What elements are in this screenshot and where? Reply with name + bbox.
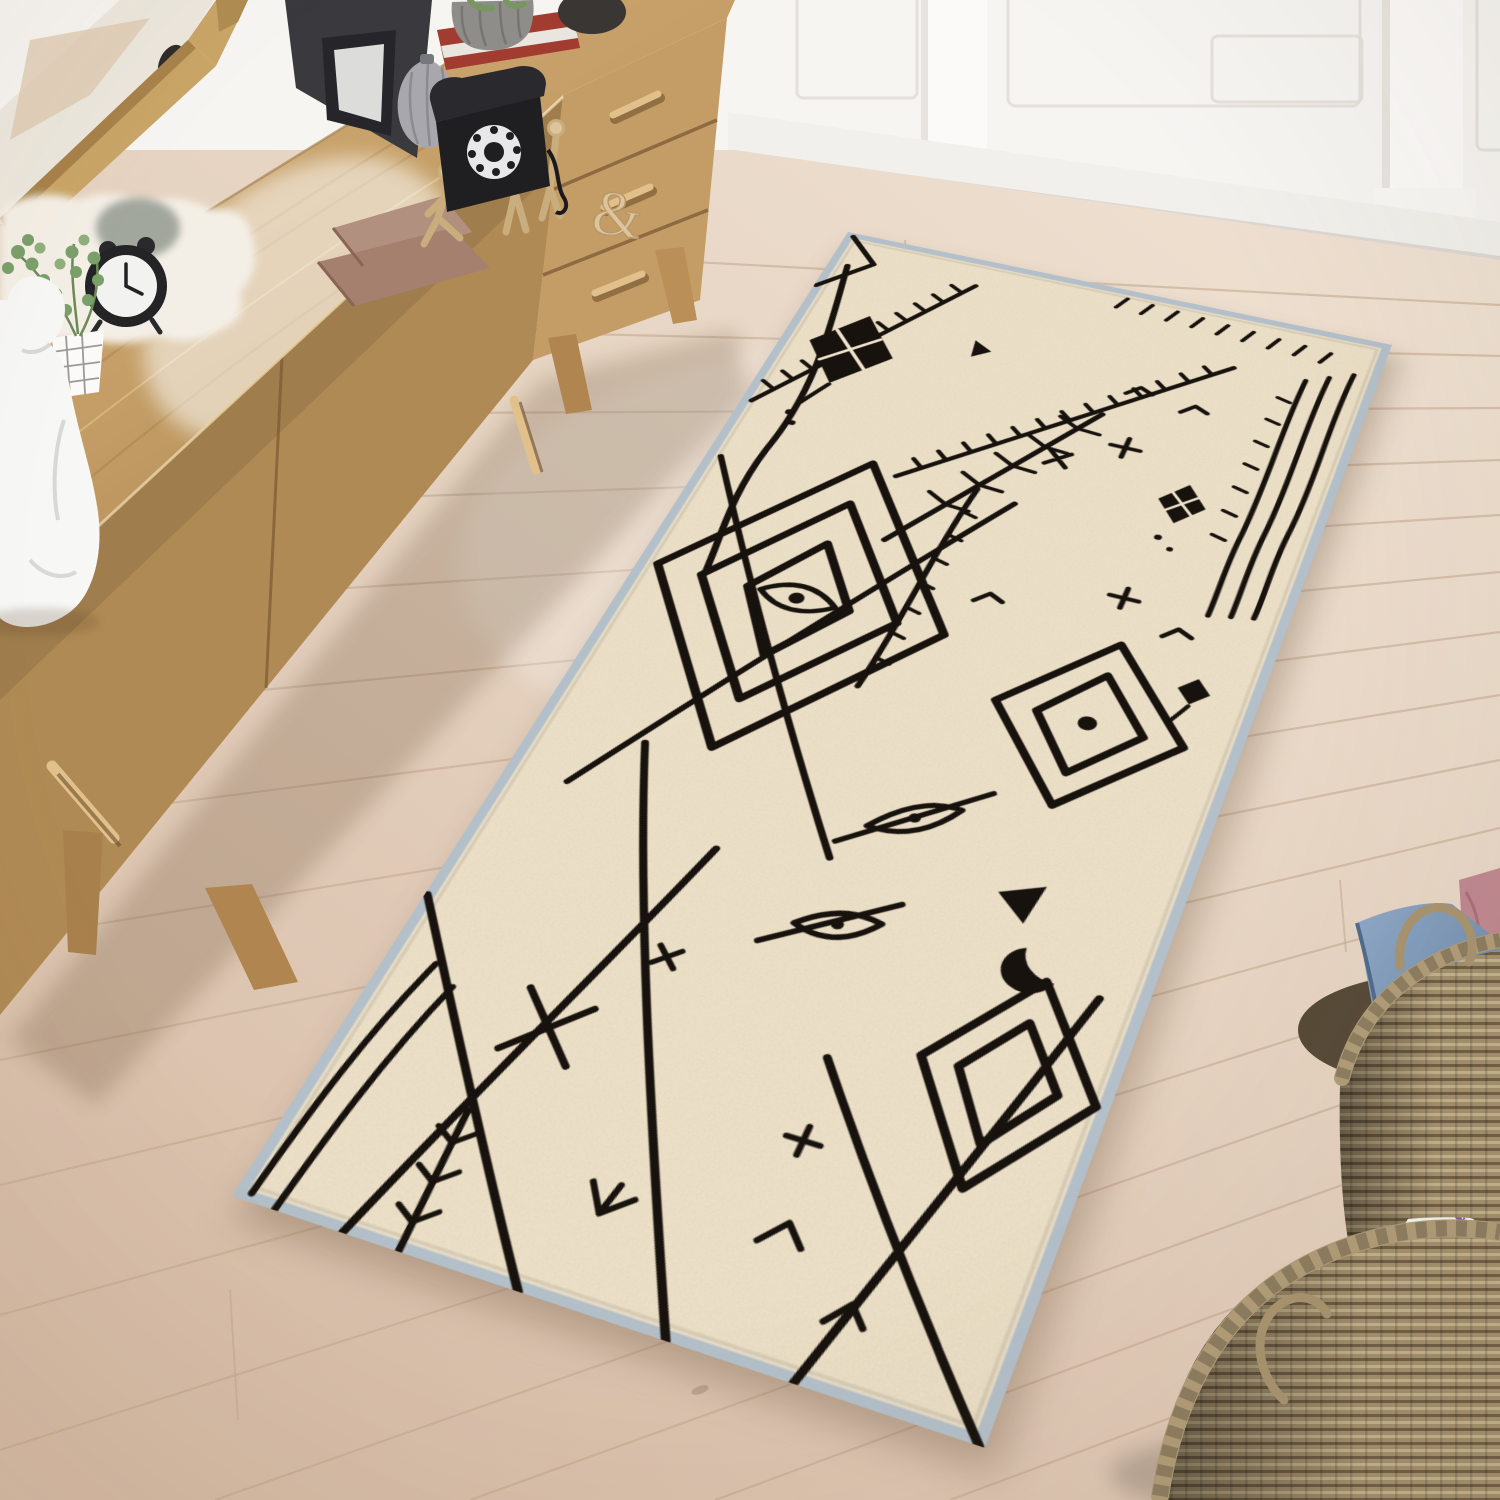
leg [63, 830, 103, 955]
scene-photo: & [0, 0, 1500, 1500]
vase-neck [420, 54, 434, 64]
wooden-letter-ampersand: & [588, 176, 647, 253]
phone-dial-center [484, 142, 504, 162]
mannequin-head [549, 121, 564, 136]
pilaster-shadow-edge [1382, 0, 1390, 210]
frame-mat [334, 44, 384, 122]
wall-pilaster [1387, 0, 1463, 206]
